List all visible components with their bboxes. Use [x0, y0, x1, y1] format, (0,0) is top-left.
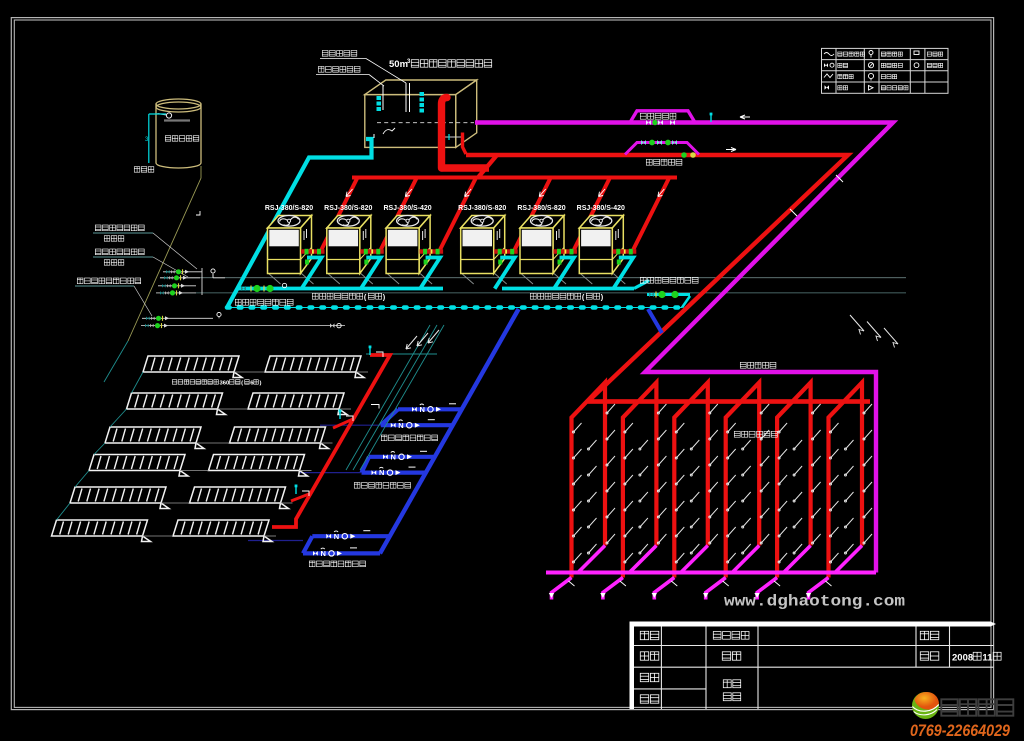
svg-text:RSJ-380/S-820: RSJ-380/S-820 — [324, 205, 372, 212]
svg-text:N: N — [321, 549, 326, 558]
svg-text:RSJ-380/S-420: RSJ-380/S-420 — [577, 205, 625, 212]
svg-text:50m: 50m — [389, 59, 408, 70]
svg-text:www.dghaotong.com: www.dghaotong.com — [724, 593, 905, 611]
svg-text:): ) — [260, 381, 262, 387]
svg-text:RSJ-380/S-820: RSJ-380/S-820 — [458, 205, 506, 212]
svg-text:11: 11 — [982, 653, 993, 664]
svg-text:N: N — [420, 405, 425, 414]
svg-text:360: 360 — [220, 381, 231, 387]
svg-text:RSJ-380/S-820: RSJ-380/S-820 — [517, 205, 565, 212]
svg-text:2008: 2008 — [952, 653, 973, 664]
svg-text:RSJ-380/S-420: RSJ-380/S-420 — [383, 205, 431, 212]
svg-text:RSJ-380/S-820: RSJ-380/S-820 — [265, 205, 313, 212]
svg-text:N: N — [379, 468, 384, 477]
svg-text:N: N — [398, 421, 403, 430]
svg-text:N: N — [391, 452, 396, 461]
svg-text:0769-22664029: 0769-22664029 — [910, 721, 1010, 740]
svg-text:N: N — [334, 532, 339, 541]
svg-text:(: ( — [241, 381, 243, 387]
